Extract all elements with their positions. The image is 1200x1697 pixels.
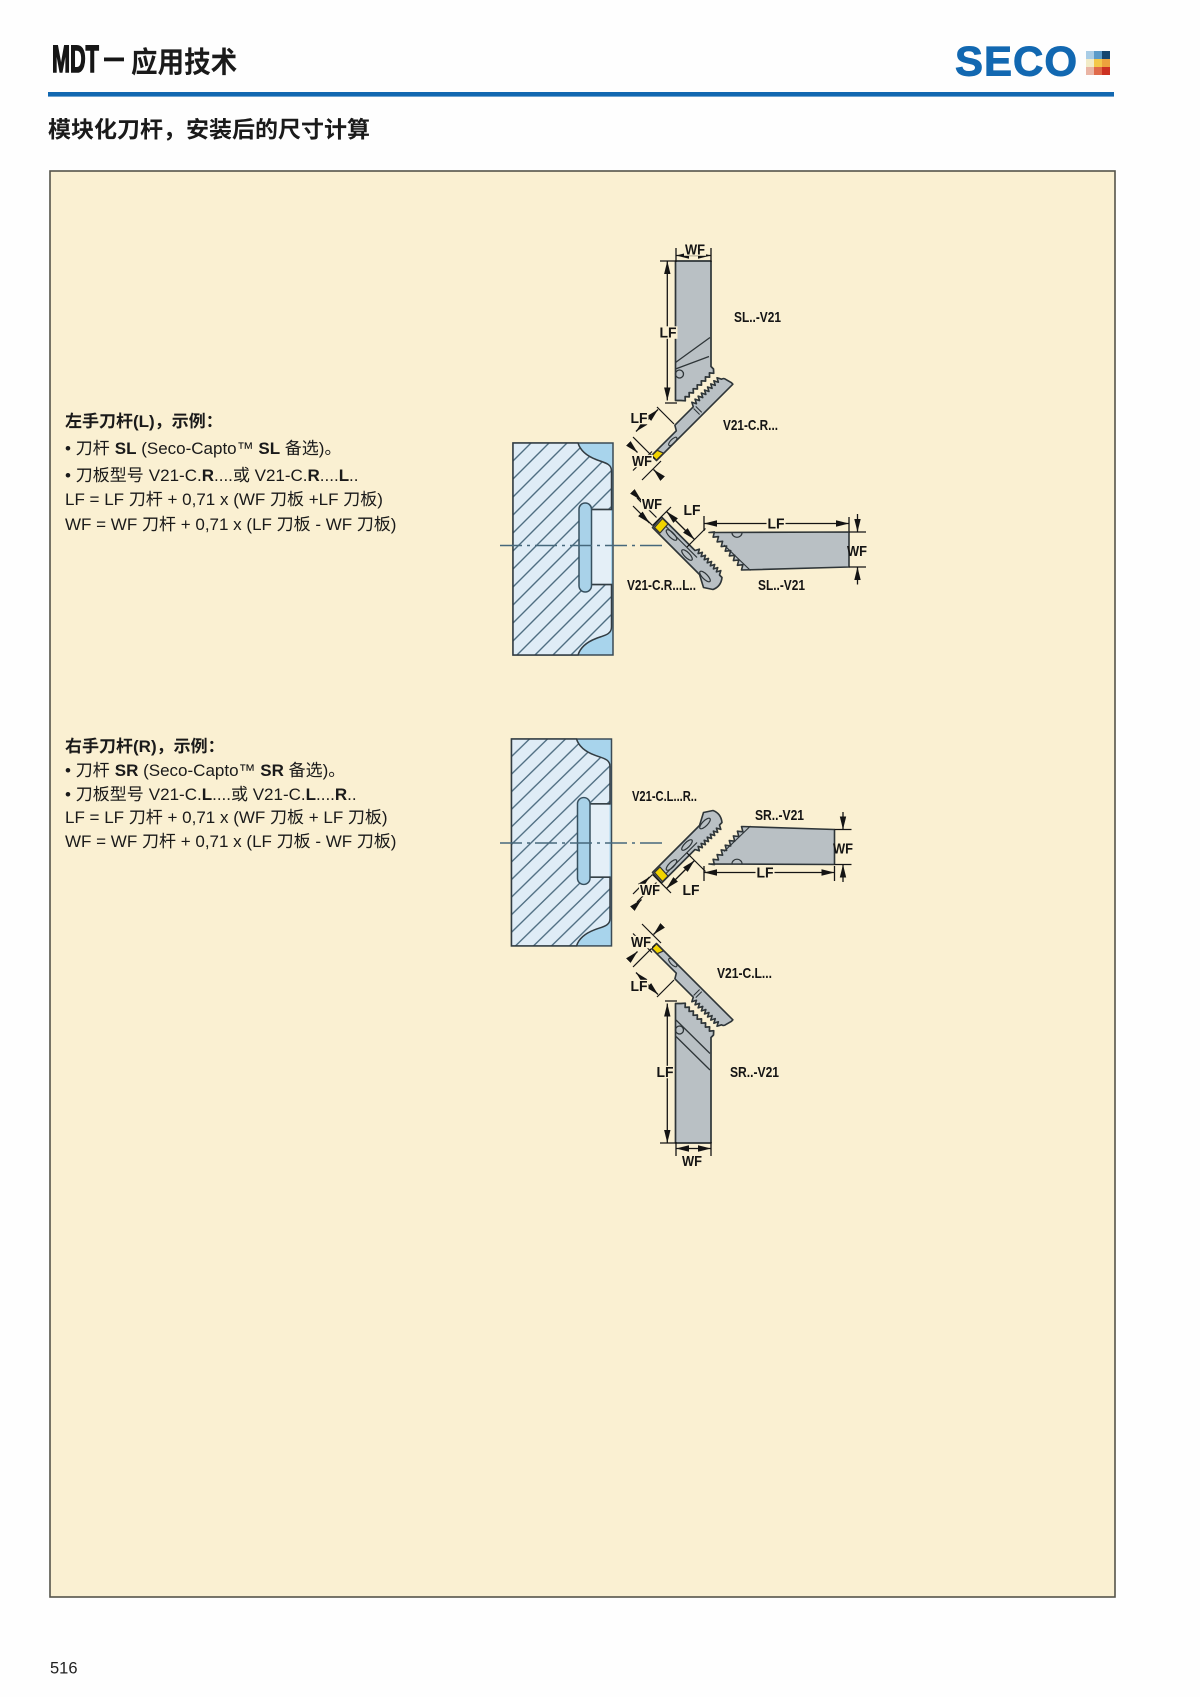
svg-text:SL: SL [258,439,280,458]
svg-text:): ) [377,490,383,509]
svg-text:L: L [339,466,349,485]
svg-text:): ) [319,439,325,458]
svg-text:+ 0,71 x (LF: + 0,71 x (LF [176,515,277,534]
svg-text:WF: WF [632,453,652,470]
svg-text:..: .. [349,466,358,485]
svg-text:LF = LF: LF = LF [65,808,129,827]
svg-text:R: R [335,785,347,804]
svg-text:LF: LF [631,978,648,995]
svg-text:SL..-V21: SL..-V21 [734,309,781,326]
svg-text:(Seco-Capto: (Seco-Capto [141,439,236,458]
svg-text:•: • [65,761,76,780]
svg-text:....: .... [214,466,233,485]
svg-text:WF = WF: WF = WF [65,832,142,851]
svg-text:): ) [382,808,388,827]
svg-text:™: ™ [237,439,259,458]
svg-text:WF: WF [640,882,660,899]
svg-text:LF: LF [757,865,774,882]
svg-text:(L): (L) [133,412,155,431]
svg-text:WF: WF [631,934,651,951]
svg-text:....: .... [320,466,339,485]
svg-text:V21-C.R...: V21-C.R... [723,417,778,434]
svg-text:..: .. [347,785,356,804]
svg-text:WF: WF [685,242,705,259]
svg-text:SR..-V21: SR..-V21 [755,807,804,824]
svg-text:R: R [308,466,320,485]
svg-text:LF: LF [684,502,701,519]
svg-text:+ 0,71 x (WF: + 0,71 x (WF [163,490,270,509]
svg-text:V21-C.L...R..: V21-C.L...R.. [632,788,697,805]
svg-text:LF = LF: LF = LF [65,490,129,509]
svg-text:R: R [202,466,214,485]
svg-text:LF: LF [657,1064,674,1081]
svg-text:- WF: - WF [311,515,357,534]
svg-text:): ) [391,832,397,851]
svg-text:+LF: +LF [304,490,343,509]
svg-text:L: L [202,785,212,804]
svg-text:MDT: MDT [52,38,99,81]
svg-text:....: .... [212,785,231,804]
svg-text:•: • [65,466,76,485]
svg-text:V21-C.: V21-C. [250,466,308,485]
svg-text:+ 0,71 x (LF: + 0,71 x (LF [176,832,277,851]
svg-text:L: L [306,785,316,804]
svg-text:WF: WF [682,1153,702,1170]
svg-text:LF: LF [660,325,677,342]
svg-text:V21-C.R...L..: V21-C.R...L.. [627,577,696,594]
svg-text:WF: WF [847,543,867,560]
svg-text:•: • [65,439,76,458]
svg-text:SR..-V21: SR..-V21 [730,1064,779,1081]
svg-text:WF: WF [833,841,853,858]
svg-text:(R): (R) [133,737,157,756]
svg-text:): ) [391,515,397,534]
svg-text:WF = WF: WF = WF [65,515,142,534]
svg-text:....: .... [316,785,335,804]
svg-text:(Seco-Capto: (Seco-Capto [143,761,238,780]
svg-text:+ LF: + LF [304,808,348,827]
svg-text:SR: SR [115,761,143,780]
svg-text:SL..-V21: SL..-V21 [758,577,805,594]
svg-text:WF: WF [642,496,662,513]
svg-text:LF: LF [683,882,700,899]
svg-text:SL: SL [115,439,141,458]
svg-text:- WF: - WF [311,832,357,851]
svg-text:™: ™ [239,761,261,780]
svg-text:V21-C.: V21-C. [248,785,306,804]
svg-text:LF: LF [631,410,648,427]
svg-text:SR: SR [260,761,284,780]
svg-text:V21-C.L...: V21-C.L... [717,965,772,982]
svg-text:+ 0,71 x (WF: + 0,71 x (WF [163,808,270,827]
svg-text:516: 516 [50,1660,78,1678]
svg-text:•: • [65,785,76,804]
svg-text:V21-C.: V21-C. [149,466,202,485]
svg-text:LF: LF [768,516,785,533]
svg-text:): ) [323,761,329,780]
svg-text:SECO: SECO [955,38,1078,85]
svg-text:V21-C.: V21-C. [149,785,202,804]
